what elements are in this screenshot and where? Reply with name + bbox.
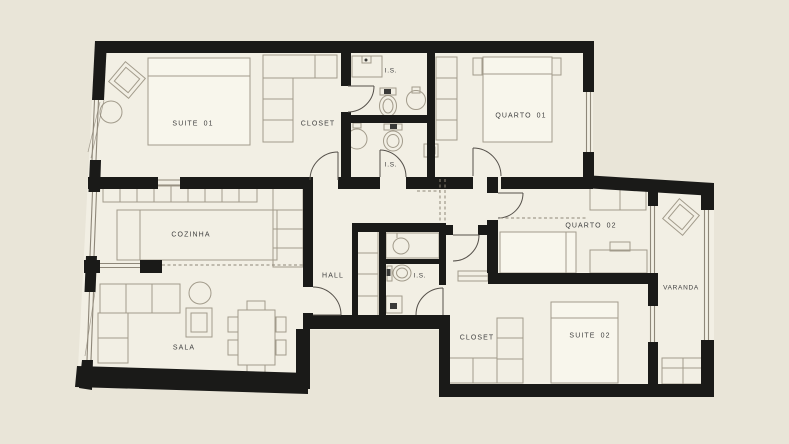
- bed: [483, 57, 552, 142]
- bed: [148, 58, 250, 145]
- room-label-hall: HALL: [322, 273, 344, 280]
- room-label-suite01: SUITE 01: [172, 121, 213, 128]
- bed: [551, 302, 618, 383]
- room-label-closet-top: CLOSET: [301, 121, 336, 128]
- room-label-varanda: VARANDA: [663, 285, 699, 292]
- room-label-is-top: I.S.: [385, 68, 398, 75]
- room-label-sala: SALA: [173, 345, 195, 352]
- floor-plan: SUITE 01 CLOSET I.S. QUARTO 01 I.S. COZI…: [0, 0, 789, 444]
- room-label-suite02: SUITE 02: [569, 333, 610, 340]
- bed: [500, 232, 576, 273]
- room-label-is-mid: I.S.: [385, 162, 398, 169]
- room-label-quarto02: QUARTO 02: [565, 223, 616, 230]
- room-label-quarto01: QUARTO 01: [495, 113, 546, 120]
- room-label-closet-bottom: CLOSET: [460, 335, 495, 342]
- room-label-is-hall: I.S.: [414, 273, 427, 280]
- suite02-furniture: [551, 302, 618, 383]
- room-label-cozinha: COZINHA: [171, 232, 210, 239]
